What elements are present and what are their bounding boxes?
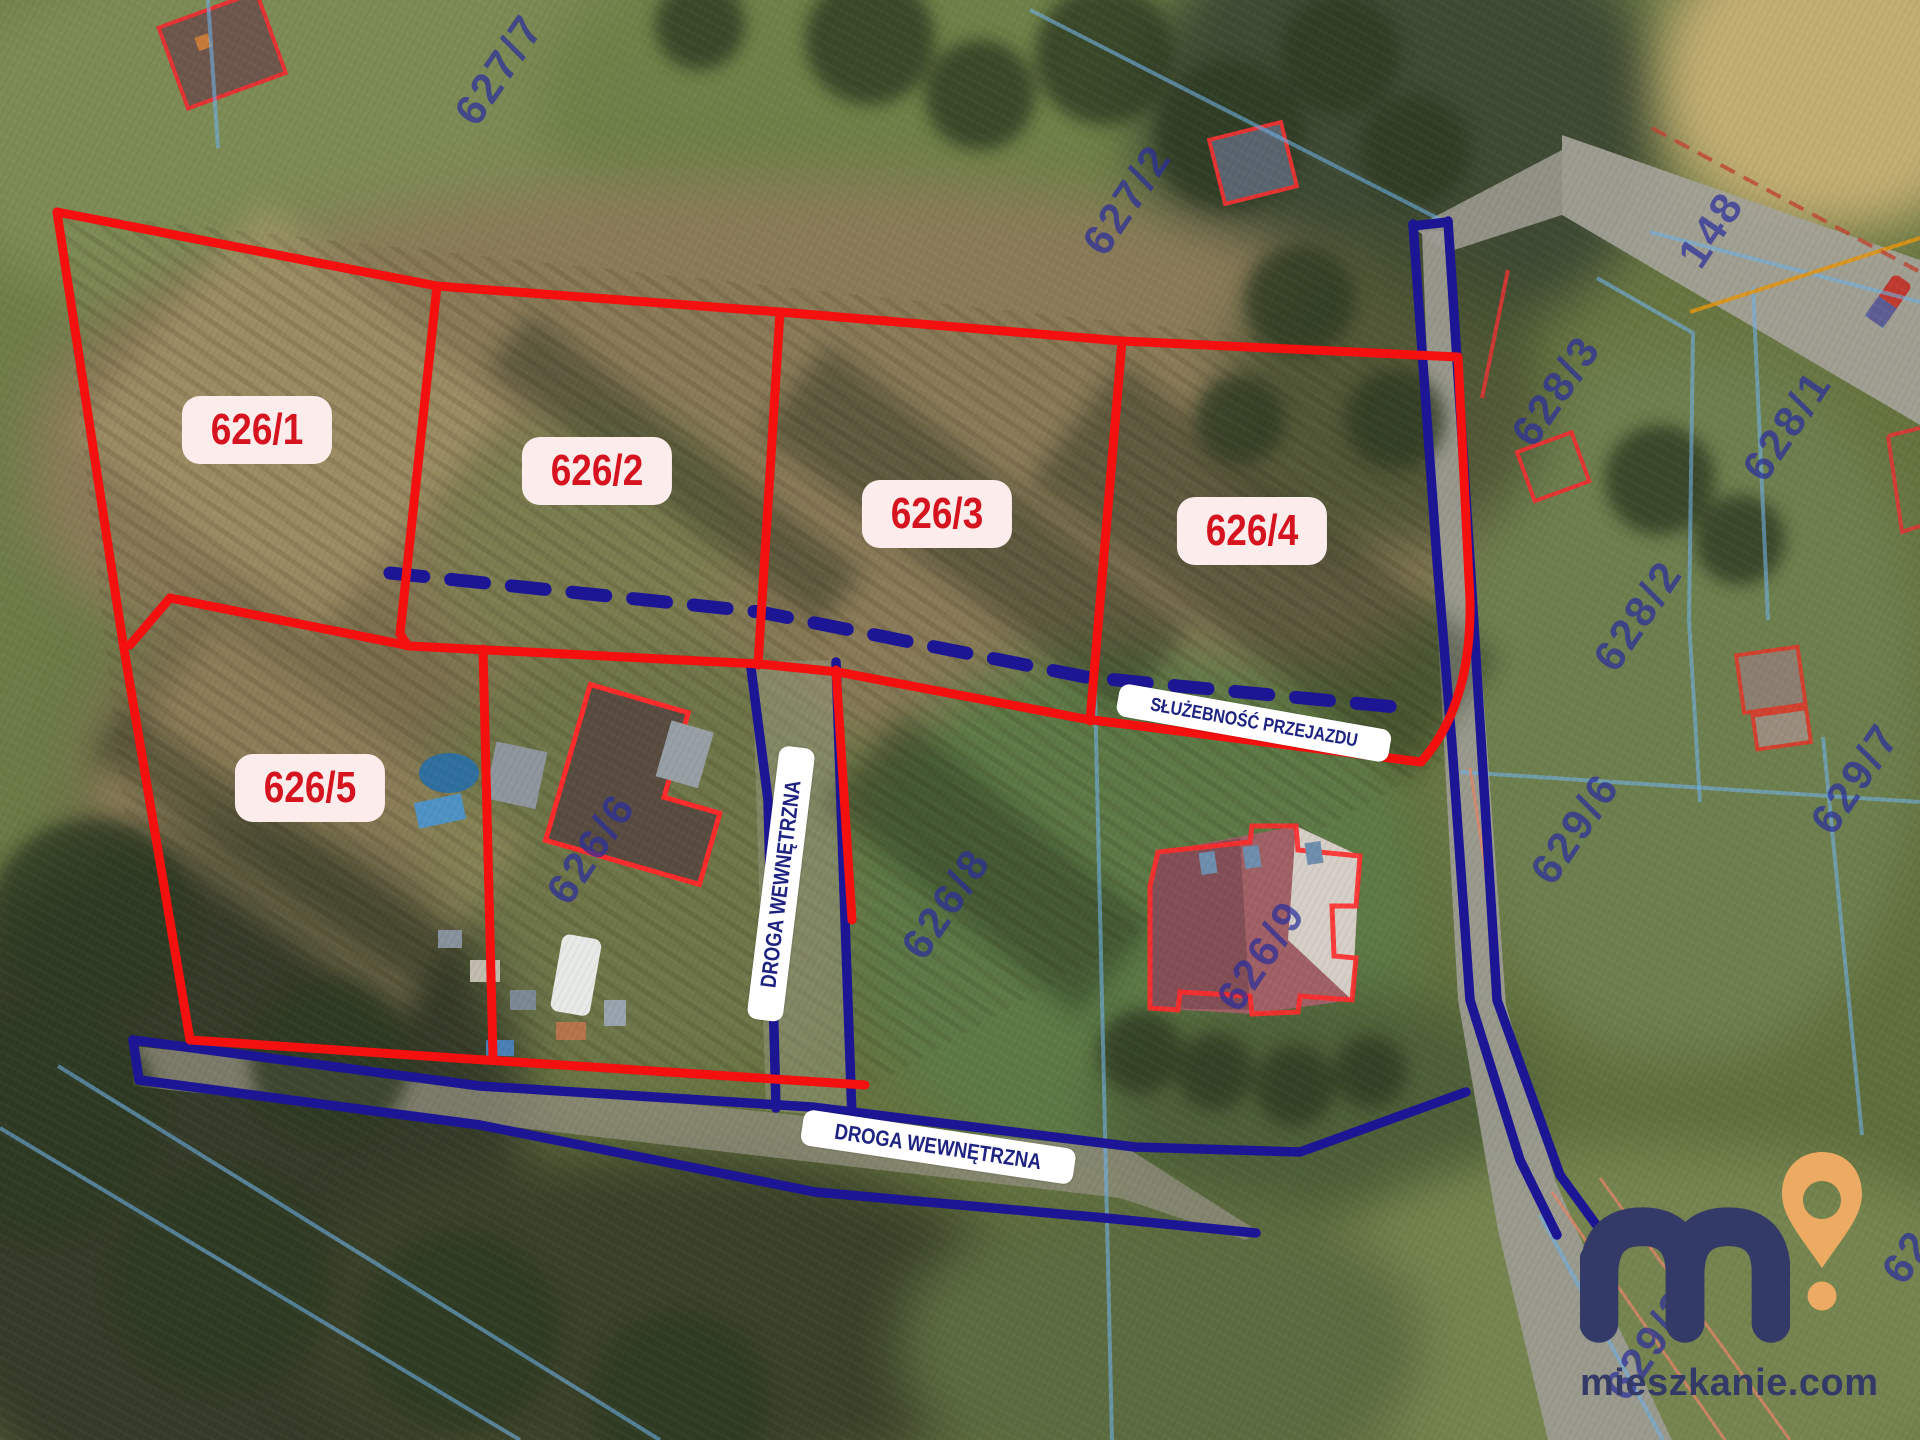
- parcel-boundary-mid: [170, 598, 760, 664]
- parcel-label-text: 626/4: [1206, 509, 1298, 553]
- aerial-map: 626/1626/2626/3626/4626/5SŁUŻEBNOŚĆ PRZE…: [0, 0, 1920, 1440]
- parcel-label-text: 626/5: [264, 766, 356, 810]
- divider-626-1-2: [400, 286, 437, 646]
- parcel-label-text: 626/2: [551, 449, 643, 493]
- parcel-label: 626/2: [522, 437, 672, 505]
- parcel-label-text: 626/3: [891, 492, 983, 536]
- divider-626-3-4: [1090, 341, 1122, 721]
- parcel-boundary-top: [57, 212, 1458, 357]
- road-outline-bottom-inner: [133, 1040, 1466, 1152]
- website-text: mieszkanie.com: [1580, 1362, 1878, 1405]
- road-outline-top-cap: [1413, 222, 1448, 226]
- parcel-label-text: 626/1: [211, 408, 303, 452]
- parcel-label: 626/4: [1177, 497, 1327, 565]
- house-parcel-left-edge: [483, 649, 493, 1058]
- parcel-label: 626/5: [235, 754, 385, 822]
- logo-pin-icon: [1772, 1114, 1872, 1349]
- parcel-626-5-notch: [130, 598, 170, 645]
- logo-m-letter: [1580, 1204, 1790, 1344]
- road-outline-left-cap: [133, 1040, 139, 1080]
- parcel-label: 626/1: [182, 396, 332, 464]
- parcel-label: 626/3: [862, 480, 1012, 548]
- parcel-boundary-left: [57, 212, 190, 1040]
- mieszkanie-logo: mieszkanie.com: [1560, 1100, 1920, 1440]
